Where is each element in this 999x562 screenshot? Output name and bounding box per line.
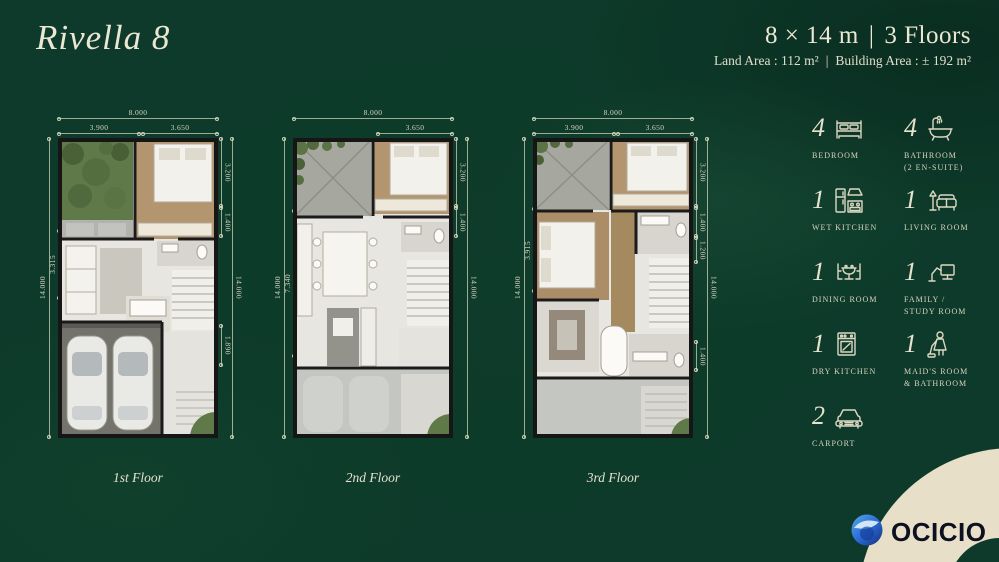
maid-icon [925, 330, 952, 358]
amenity-living-room: 1 LIVING ROOM [904, 184, 992, 256]
amenity-label: WET KITCHEN [812, 222, 900, 234]
carport-area [60, 322, 162, 436]
amenities-legend: 4 BEDROOM 4 BATHROOM (2 EN-SUITE) 1 [812, 112, 992, 472]
floor-plan-3-svg [533, 138, 693, 438]
floor-plan-1-svg [58, 138, 218, 438]
roof [535, 378, 691, 436]
dim-label: 3.315 [49, 255, 57, 274]
dim-top-overall: 8.000 [58, 104, 218, 119]
floor-plan-3: 8.000 3.900 3.650 14.000 3.915 3.200 1.4… [513, 104, 719, 496]
amenity-bedroom: 4 BEDROOM [812, 112, 900, 184]
spec-separator: | [869, 22, 875, 49]
dim-top-overall: 8.000 [293, 104, 453, 119]
specs-block: 8 × 14 m|3 Floors Land Area : 112 m²|Bui… [714, 22, 971, 69]
amenity-label: LIVING ROOM [904, 222, 992, 234]
land-area: Land Area : 112 m² [714, 53, 819, 68]
building-area: Building Area : ± 192 m² [835, 53, 971, 68]
void-terrace [534, 138, 609, 210]
amenity-label: DRY KITCHEN [812, 366, 900, 378]
floor-plan-2-drawing [293, 138, 453, 438]
dim-top-segment: 3.650 [142, 119, 218, 134]
dim-label: 3.650 [406, 124, 425, 132]
size-spec: 8 × 14 m [765, 22, 859, 49]
dining-room-icon [833, 259, 865, 285]
brochure-page: Rivella 8 8 × 14 m|3 Floors Land Area : … [0, 0, 999, 562]
stairs [172, 270, 216, 330]
dim-right-overall: 14.000 [466, 138, 478, 438]
dim-top-segment: 3.650 [617, 119, 693, 134]
dim-label: 3.900 [90, 124, 109, 132]
amenity-label: MAID'S ROOM & BATHROOM [904, 366, 992, 390]
family-study-icon [925, 259, 957, 285]
amenity-count: 4 [904, 113, 917, 143]
wet-kitchen-icon [833, 186, 865, 215]
void-terrace [293, 138, 371, 216]
specs-main: 8 × 14 m|3 Floors [714, 22, 971, 50]
dim-label: 14.000 [710, 276, 718, 299]
carport-icon [833, 404, 865, 429]
floor-plan-2-svg [293, 138, 453, 438]
amenity-count: 4 [812, 113, 825, 143]
dim-label: 14.000 [235, 276, 243, 299]
dim-label: 3.900 [565, 124, 584, 132]
amenity-count: 1 [812, 257, 825, 287]
dim-label: 3.915 [524, 241, 532, 260]
floor-plan-2: 8.000 3.650 14.000 7.340 3.200 1.400 14.… [273, 104, 479, 496]
dim-label: 8.000 [364, 109, 383, 117]
floor-caption: 2nd Floor [293, 470, 453, 486]
amenity-label: FAMILY / STUDY ROOM [904, 294, 992, 318]
dim-right-overall: 14.000 [706, 138, 718, 438]
amenity-label: CARPORT [812, 438, 900, 450]
brand-logo: OCICIO [850, 513, 986, 552]
dim-label: 8.000 [604, 109, 623, 117]
spec-separator: | [826, 53, 829, 68]
amenity-count: 1 [904, 185, 917, 215]
amenity-count: 1 [812, 185, 825, 215]
dim-top-segment: 3.650 [377, 119, 453, 134]
floor-plan-1-drawing [58, 138, 218, 438]
dim-label: 8.000 [129, 109, 148, 117]
dining-table [313, 232, 377, 296]
page-title: Rivella 8 [36, 18, 170, 58]
dim-top-segment: 3.900 [533, 119, 615, 134]
floor-caption: 3rd Floor [533, 470, 693, 486]
garden [60, 140, 133, 220]
dim-right-overall: 14.000 [231, 138, 243, 438]
dim-label: 14.000 [514, 276, 522, 299]
master-bedroom [535, 212, 609, 300]
dim-top-overall: 8.000 [533, 104, 693, 119]
dim-top-segment: 3.900 [58, 119, 140, 134]
floors-spec: 3 Floors [884, 22, 971, 49]
roof [295, 368, 451, 436]
amenity-dining-room: 1 DINING ROOM [812, 256, 900, 328]
amenity-label: BATHROOM (2 EN-SUITE) [904, 150, 992, 174]
amenity-label: DINING ROOM [812, 294, 900, 306]
floor-plan-1: 8.000 3.900 3.650 14.000 3.315 3.200 1.4… [38, 104, 244, 496]
amenity-carport: 2 CARPORT [812, 400, 900, 472]
amenity-count: 1 [812, 329, 825, 359]
bathtub-icon [925, 114, 955, 142]
specs-sub: Land Area : 112 m²|Building Area : ± 192… [714, 53, 971, 69]
brand-name: OCICIO [891, 517, 986, 548]
dim-label: 7.340 [284, 274, 292, 293]
stairs [407, 260, 451, 326]
floor-caption: 1st Floor [58, 470, 218, 486]
dim-label: 14.000 [39, 276, 47, 299]
dry-kitchen-icon [833, 330, 860, 358]
living-room-icon [925, 187, 957, 214]
amenity-label: BEDROOM [812, 150, 900, 162]
bed-icon [833, 115, 865, 142]
dim-label: 14.000 [470, 276, 478, 299]
ocicio-globe-icon [850, 513, 884, 552]
amenity-family-study-room: 1 FAMILY / STUDY ROOM [904, 256, 992, 328]
amenity-maids-room: 1 MAID'S ROOM & BATHROOM [904, 328, 992, 400]
amenity-wet-kitchen: 1 WET KITCHEN [812, 184, 900, 256]
dim-label: 14.000 [274, 276, 282, 299]
amenity-dry-kitchen: 1 DRY KITCHEN [812, 328, 900, 400]
amenity-count: 1 [904, 329, 917, 359]
stairs [649, 258, 691, 328]
amenity-bathroom: 4 BATHROOM (2 EN-SUITE) [904, 112, 992, 184]
amenity-count: 2 [812, 401, 825, 431]
floor-plan-3-drawing [533, 138, 693, 438]
dim-label: 3.650 [171, 124, 190, 132]
amenity-count: 1 [904, 257, 917, 287]
dim-label: 3.650 [646, 124, 665, 132]
